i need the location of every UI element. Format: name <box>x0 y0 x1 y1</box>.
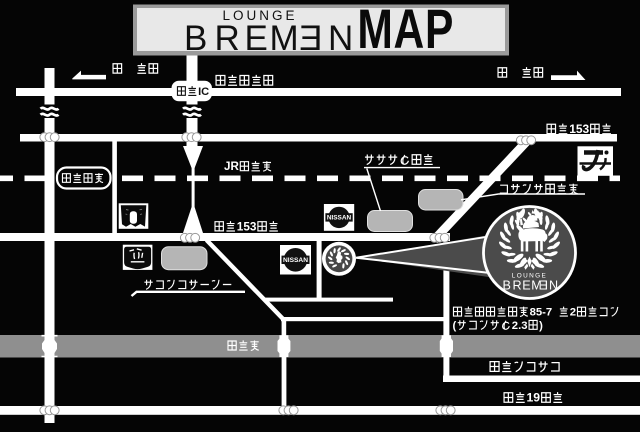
svg-text:N: N <box>328 19 353 58</box>
svg-text:JR: JR <box>224 160 239 173</box>
svg-text:2.3: 2.3 <box>512 320 528 332</box>
svg-text:19: 19 <box>527 391 541 405</box>
svg-text:B: B <box>184 19 207 58</box>
svg-text:M: M <box>270 19 299 58</box>
svg-text:IC: IC <box>198 86 209 98</box>
svg-text:NISSAN: NISSAN <box>327 215 352 222</box>
svg-text:85-7: 85-7 <box>530 307 553 319</box>
svg-text:153: 153 <box>237 219 257 233</box>
svg-text:R: R <box>215 19 240 58</box>
svg-text:(: ( <box>453 320 457 332</box>
svg-text:B: B <box>503 278 511 292</box>
svg-text:NISSAN: NISSAN <box>283 257 309 264</box>
svg-text:E: E <box>522 278 530 292</box>
svg-text:): ) <box>539 320 543 332</box>
svg-text:2: 2 <box>570 307 576 319</box>
svg-text:R: R <box>513 278 522 292</box>
svg-text:MAP: MAP <box>357 0 454 60</box>
svg-text:E: E <box>245 19 268 58</box>
svg-text:E: E <box>540 278 548 292</box>
svg-text:N: N <box>549 278 558 292</box>
svg-text:E: E <box>299 19 322 58</box>
svg-text:153: 153 <box>569 122 589 136</box>
